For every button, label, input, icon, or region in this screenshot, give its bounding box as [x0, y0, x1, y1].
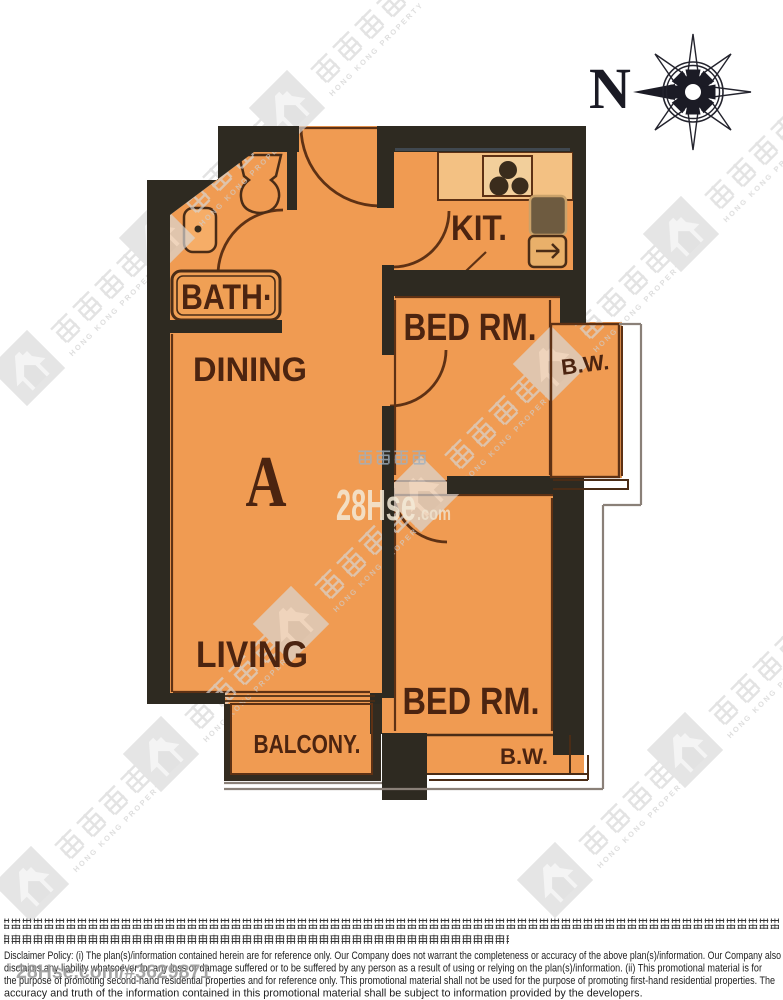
svg-text:DINING: DINING: [193, 351, 307, 389]
svg-text:28Hse.com/#3629871: 28Hse.com/#3629871: [16, 961, 211, 983]
svg-text:BED RM.: BED RM.: [404, 307, 537, 349]
svg-text:BALCONY.: BALCONY.: [254, 729, 361, 759]
svg-text:A: A: [246, 441, 287, 522]
svg-text:B.W.: B.W.: [500, 744, 548, 769]
svg-text:BED RM.: BED RM.: [403, 681, 540, 723]
svg-text:accuracy and truth of the info: accuracy and truth of the information co…: [4, 988, 643, 1000]
svg-text:.com: .com: [417, 504, 451, 525]
svg-text:LIVING: LIVING: [196, 634, 308, 675]
svg-text:N: N: [589, 56, 631, 121]
svg-text:28Hse: 28Hse: [336, 481, 416, 530]
svg-text:KIT.: KIT.: [451, 209, 507, 248]
svg-text:BATH·: BATH·: [181, 278, 273, 317]
